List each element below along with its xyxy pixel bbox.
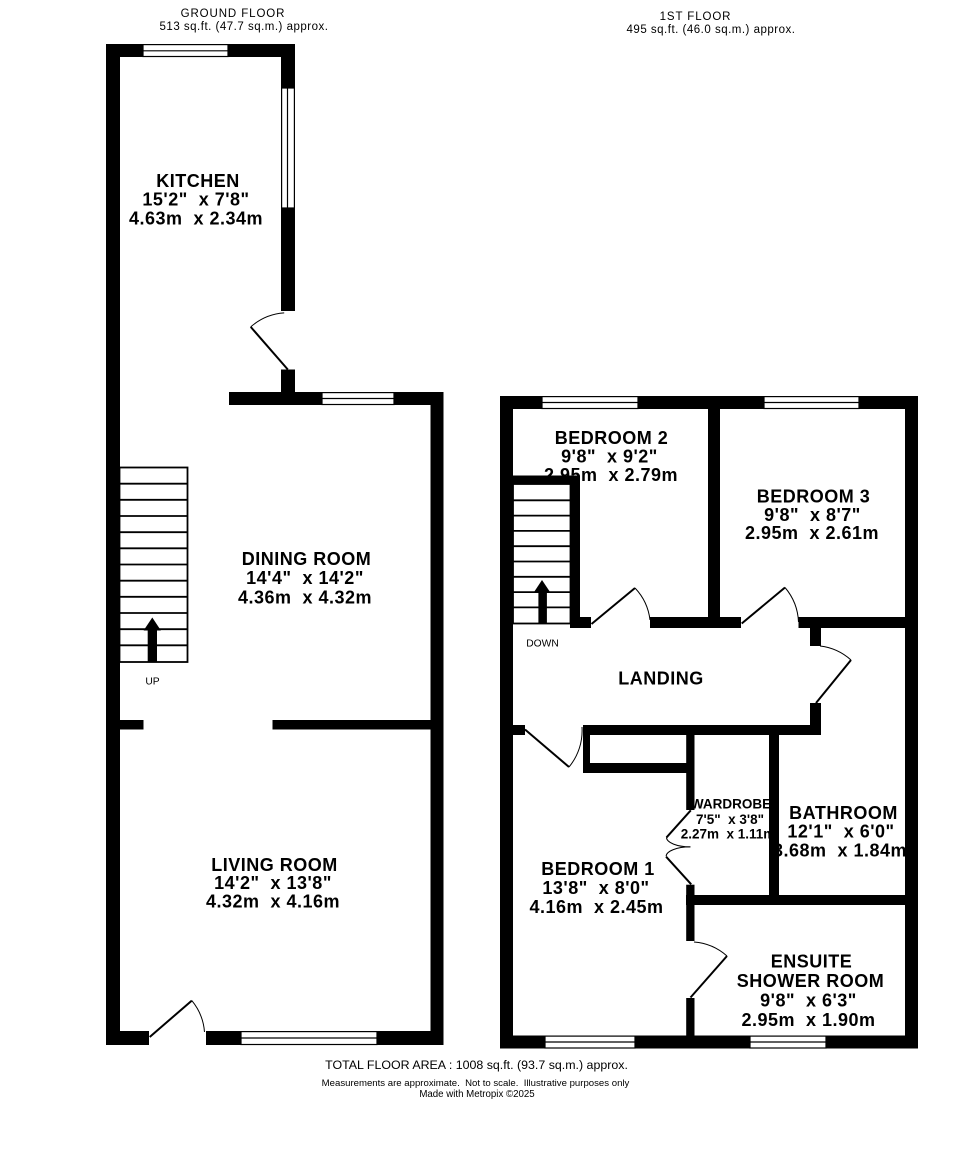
svg-text:2.95m x 2.79m: 2.95m x 2.79m (544, 465, 678, 485)
svg-text:BEDROOM 2: BEDROOM 2 (555, 428, 669, 448)
svg-text:9'8" x 9'2": 9'8" x 9'2" (561, 447, 658, 467)
svg-text:1ST FLOOR: 1ST FLOOR (660, 11, 732, 23)
svg-text:ENSUITE: ENSUITE (771, 952, 853, 972)
svg-text:BEDROOM 1: BEDROOM 1 (541, 859, 655, 879)
svg-text:2.27m x 1.11m: 2.27m x 1.11m (681, 827, 776, 842)
svg-text:9'8" x 8'7": 9'8" x 8'7" (764, 505, 861, 525)
svg-text:TOTAL FLOOR AREA : 1008 sq.ft.: TOTAL FLOOR AREA : 1008 sq.ft. (93.7 sq.… (325, 1058, 628, 1072)
svg-text:3.68m x 1.84m: 3.68m x 1.84m (773, 841, 907, 861)
svg-text:13'8" x 8'0": 13'8" x 8'0" (542, 878, 649, 898)
svg-text:12'1" x 6'0": 12'1" x 6'0" (787, 822, 894, 842)
svg-text:DINING ROOM: DINING ROOM (242, 549, 372, 569)
svg-text:UP: UP (145, 677, 159, 688)
svg-text:2.95m x 1.90m: 2.95m x 1.90m (741, 1010, 875, 1030)
svg-text:BEDROOM 3: BEDROOM 3 (757, 487, 871, 507)
svg-text:513 sq.ft. (47.7 sq.m.) approx: 513 sq.ft. (47.7 sq.m.) approx. (160, 21, 329, 33)
svg-text:Made with Metropix ©2025: Made with Metropix ©2025 (419, 1089, 534, 1100)
svg-text:SHOWER ROOM: SHOWER ROOM (737, 971, 885, 991)
svg-text:BATHROOM: BATHROOM (789, 803, 898, 823)
svg-text:WARDROBE: WARDROBE (691, 797, 771, 812)
svg-text:KITCHEN: KITCHEN (156, 171, 240, 191)
svg-text:14'2" x 13'8": 14'2" x 13'8" (214, 873, 332, 893)
svg-text:GROUND FLOOR: GROUND FLOOR (181, 8, 286, 20)
svg-text:495 sq.ft. (46.0 sq.m.) approx: 495 sq.ft. (46.0 sq.m.) approx. (627, 24, 796, 36)
svg-text:4.16m x 2.45m: 4.16m x 2.45m (529, 897, 663, 917)
svg-text:15'2" x 7'8": 15'2" x 7'8" (142, 190, 249, 210)
svg-text:4.32m x 4.16m: 4.32m x 4.16m (206, 892, 340, 912)
svg-text:7'5" x 3'8": 7'5" x 3'8" (696, 812, 764, 827)
svg-text:4.63m x 2.34m: 4.63m x 2.34m (129, 209, 263, 229)
svg-text:Measurements are approximate.: Measurements are approximate. Not to sca… (322, 1078, 630, 1089)
svg-text:9'8" x 6'3": 9'8" x 6'3" (760, 990, 857, 1010)
svg-text:LANDING: LANDING (618, 669, 704, 689)
svg-text:DOWN: DOWN (526, 639, 559, 650)
svg-text:LIVING ROOM: LIVING ROOM (211, 855, 338, 875)
svg-text:4.36m x 4.32m: 4.36m x 4.32m (238, 588, 372, 608)
svg-text:14'4" x 14'2": 14'4" x 14'2" (246, 568, 364, 588)
svg-text:2.95m x 2.61m: 2.95m x 2.61m (745, 523, 879, 543)
